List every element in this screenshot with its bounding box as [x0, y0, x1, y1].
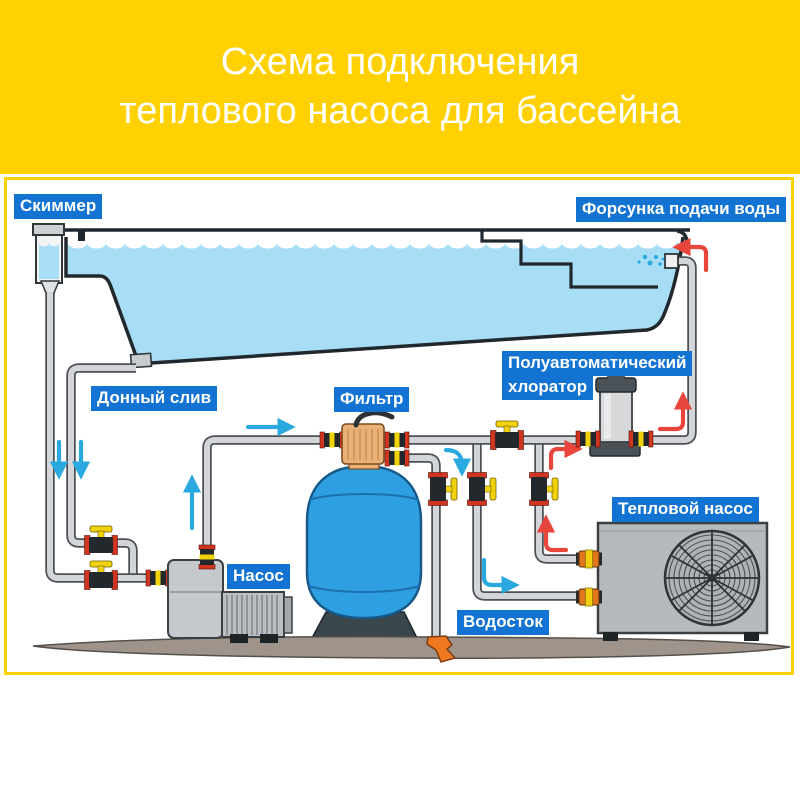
label-inlet-nozzle: Форсунка подачи воды — [576, 197, 786, 222]
label-drain: Водосток — [457, 610, 549, 635]
union-chlorinator-outlet — [629, 431, 653, 447]
label-pump: Насос — [227, 564, 290, 589]
cold-flow-arrow-to-heatpump — [484, 560, 508, 585]
union-filter-outlet — [385, 432, 409, 448]
ball-valve-waste — [429, 473, 458, 506]
screenshot-root: Схема подключения теплового насоса для б… — [0, 0, 800, 801]
union-filter-waste — [385, 450, 409, 466]
label-chlorinator-line1: Полуавтоматический — [502, 351, 692, 376]
union-heatpump-supply — [576, 588, 602, 606]
union-heatpump-return — [576, 550, 602, 568]
ball-valve-drain-line — [85, 526, 118, 555]
pipe-heatpump-supply — [477, 442, 586, 596]
heat-pump-graphic — [598, 523, 767, 641]
ball-valve-heatpump-return — [530, 473, 559, 506]
union-pump-inlet — [146, 570, 170, 586]
skimmer-graphic — [33, 224, 64, 293]
label-skimmer: Скиммер — [14, 194, 102, 219]
cold-flow-arrow-to-supply — [446, 450, 462, 465]
label-filter: Фильтр — [334, 387, 409, 412]
pool-coping-tab — [78, 230, 85, 241]
union-chlorinator-inlet — [576, 431, 600, 447]
label-heat-pump: Тепловой насос — [612, 497, 759, 522]
label-bottom-drain: Донный слив — [91, 386, 217, 411]
hot-flow-arrow-to-chlorinator — [551, 449, 571, 468]
union-pump-outlet — [199, 545, 215, 569]
pool-water — [68, 243, 681, 363]
union-filter-inlet — [320, 432, 344, 448]
hot-flow-arrow-riser — [660, 403, 683, 429]
pool — [60, 230, 690, 363]
hot-flow-arrow-from-heatpump — [546, 526, 566, 550]
label-chlorinator-line2: хлоратор — [502, 375, 593, 400]
multiport-valve-handle — [356, 413, 392, 425]
ball-valve-skimmer-line — [85, 561, 118, 590]
ground — [33, 637, 790, 658]
ball-valve-bypass — [491, 421, 524, 450]
ball-valve-heatpump-supply — [468, 473, 497, 506]
